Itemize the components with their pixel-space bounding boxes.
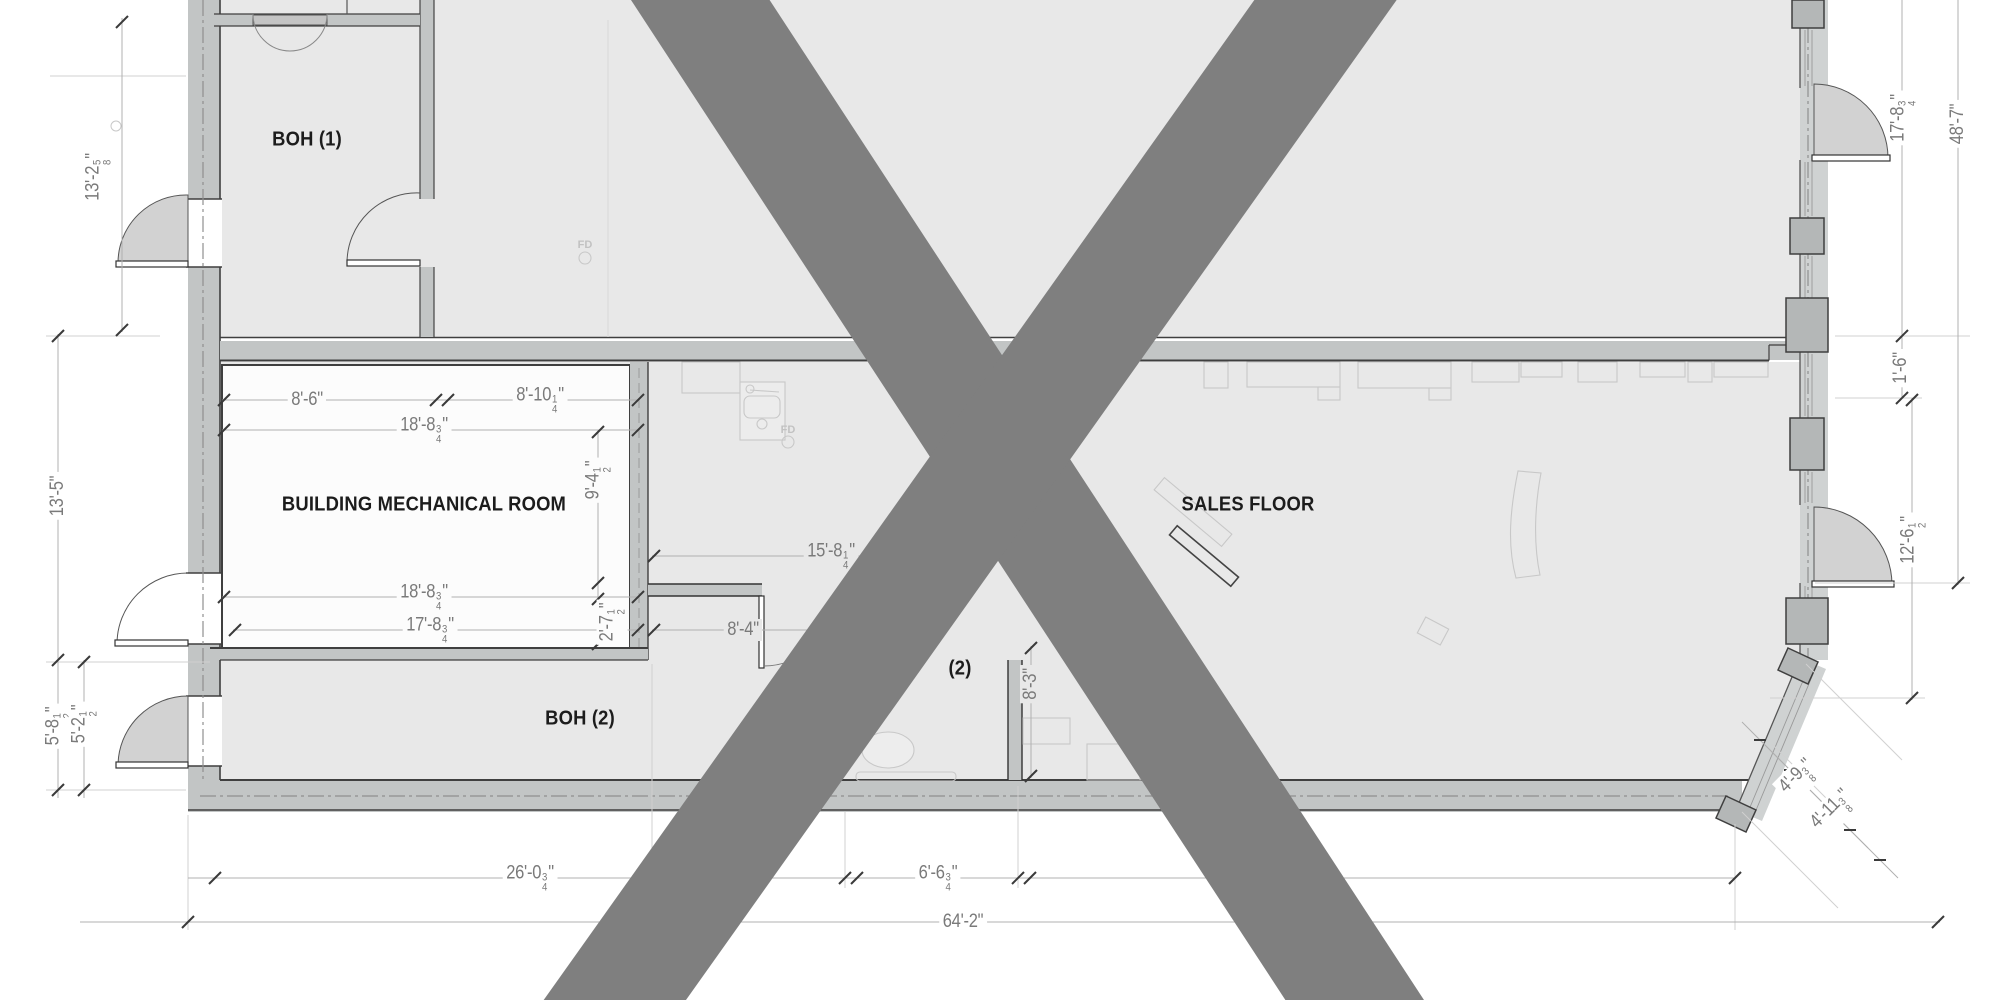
dim-left-low-inner: 5'-212" [69, 701, 100, 747]
floor-drain-1-label: FD [578, 239, 593, 251]
dim-bottom-total: 64'-2" [939, 911, 987, 933]
dim-mech-gap: 2'-712" [597, 599, 628, 645]
dim-right-lower: 12'-612" [1898, 513, 1929, 568]
wall-left [188, 0, 220, 812]
dim-bottom-mid: 6'-634" [915, 863, 961, 894]
door-swing-right-2 [1814, 507, 1892, 585]
dim-restroom-height: 8'-3" [1020, 665, 1042, 704]
door-opening-left-1 [186, 199, 222, 267]
door-swing-right-1 [1814, 84, 1888, 158]
wall-vestibule [648, 584, 762, 596]
dim-mech-width-bottom: 18'-834" [397, 582, 452, 613]
room-label-mechanical: BUILDING MECHANICAL ROOM [282, 494, 566, 517]
door-opening-left-3 [186, 696, 222, 766]
door-panel-top [253, 15, 327, 25]
door-swing-left-1 [118, 195, 188, 263]
door-swing-left-2 [117, 573, 188, 644]
dim-bottom-left: 26'-034" [503, 863, 558, 894]
room-label-boh2: BOH (2) [545, 708, 615, 731]
dim-left-upper: 13'-258" [83, 150, 114, 205]
door-opening-boh1 [418, 199, 436, 267]
door-swing-left-3 [118, 696, 188, 766]
floor-drain-2-label: FD [781, 424, 796, 436]
room-label-room2-partial: (2) [948, 658, 971, 681]
dim-mech-height-right: 9'-412" [583, 457, 614, 503]
wall-mech-bottom [210, 648, 648, 660]
dim-mech-top-left: 8'-6" [288, 389, 327, 411]
door-leaf-boh1 [347, 260, 420, 266]
dim-mid-door: 8'-4" [724, 619, 763, 641]
room-label-sales: SALES FLOOR [1182, 494, 1315, 517]
door-leaf-left-1 [116, 261, 188, 267]
floor-plan-canvas: BOH (1) BUILDING MECHANICAL ROOM SALES F… [0, 0, 2000, 1000]
dim-mech-top-right: 8'-1014" [513, 385, 568, 416]
door-leaf-left-3 [116, 762, 188, 768]
dim-right-upper: 17'-834" [1888, 91, 1919, 146]
wall-boh1-right [420, 0, 434, 337]
room-label-boh1: BOH (1) [272, 129, 342, 152]
grid-marker-left [111, 121, 121, 131]
door-leaf-right-1 [1812, 155, 1890, 161]
door-opening-left-2 [186, 573, 222, 644]
dim-right-total: 48'-7" [1947, 100, 1969, 148]
dim-left-mid: 13'-5" [47, 472, 69, 520]
door-leaf-left-2 [115, 640, 188, 646]
dim-right-small: 1'-6" [1890, 349, 1912, 388]
door-leaf-right-2 [1812, 581, 1894, 587]
dim-mech-width-inner: 17'-834" [403, 615, 458, 646]
upper-floor [220, 0, 1800, 337]
dim-mech-width-top: 18'-834" [397, 415, 452, 446]
